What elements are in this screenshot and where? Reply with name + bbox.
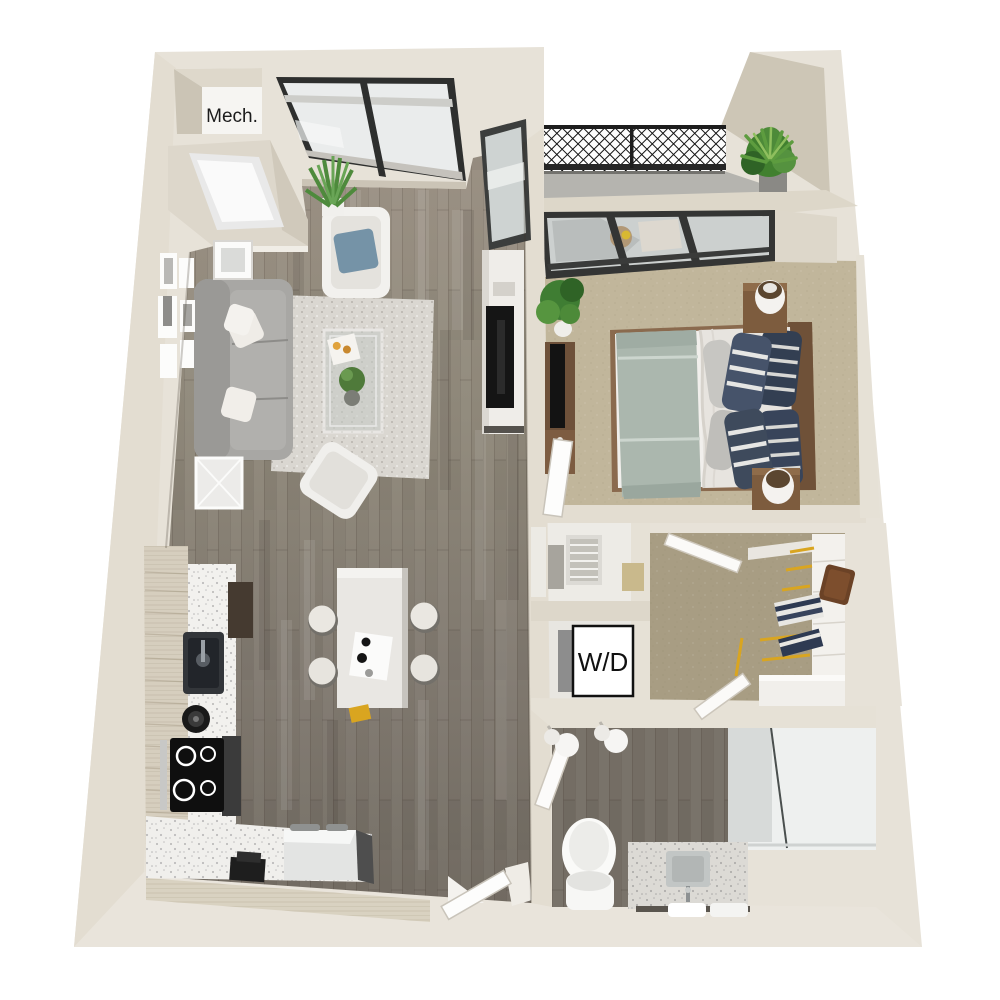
svg-text:W/D: W/D [578, 647, 629, 677]
svg-text:Mech.: Mech. [206, 106, 258, 127]
